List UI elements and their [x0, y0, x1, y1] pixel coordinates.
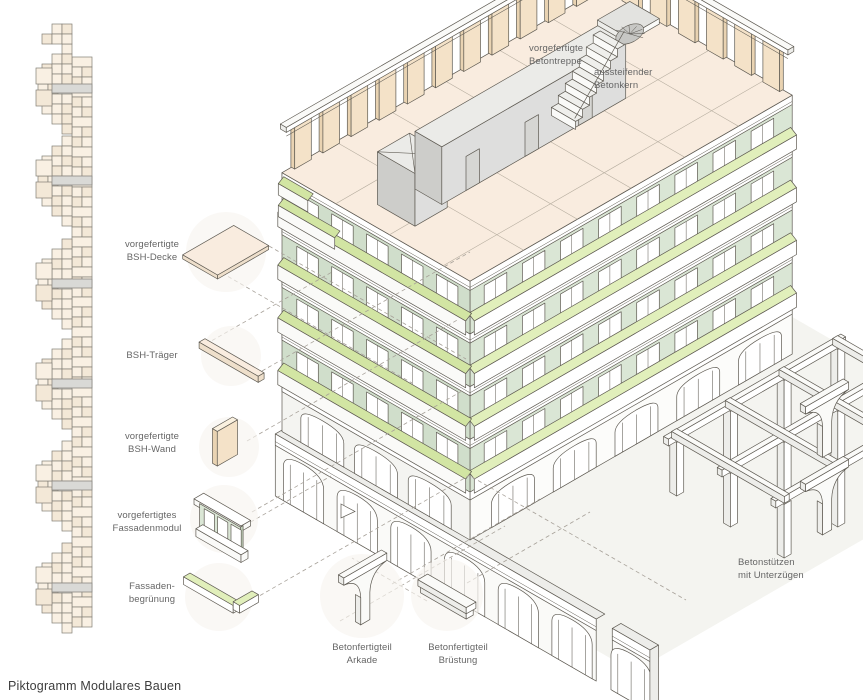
page-title: Piktogramm Modulares Bauen — [8, 679, 181, 693]
label-bsh-wand: vorgefertigte BSH-Wand — [96, 430, 208, 456]
label-betonkern: aussteifender Betonkern — [594, 66, 652, 92]
label-bsh-traeger: BSH-Träger — [96, 349, 208, 362]
label-betonstuetzen: Betonstützen mit Unterzügen — [738, 556, 804, 582]
label-bsh-decke: vorgefertigte BSH-Decke — [96, 238, 208, 264]
label-fassadenmodul: vorgefertigtes Fassadenmodul — [86, 509, 208, 535]
label-fassadenbegruenung: Fassaden- begrünung — [96, 580, 208, 606]
label-bruestung: Betonfertigteil Brüstung — [402, 641, 514, 667]
pictogram-canvas: vorgefertigte Betontreppe aussteifender … — [0, 0, 863, 700]
modular-pattern-strip — [36, 24, 92, 633]
label-betontreppe: vorgefertigte Betontreppe — [529, 42, 583, 68]
